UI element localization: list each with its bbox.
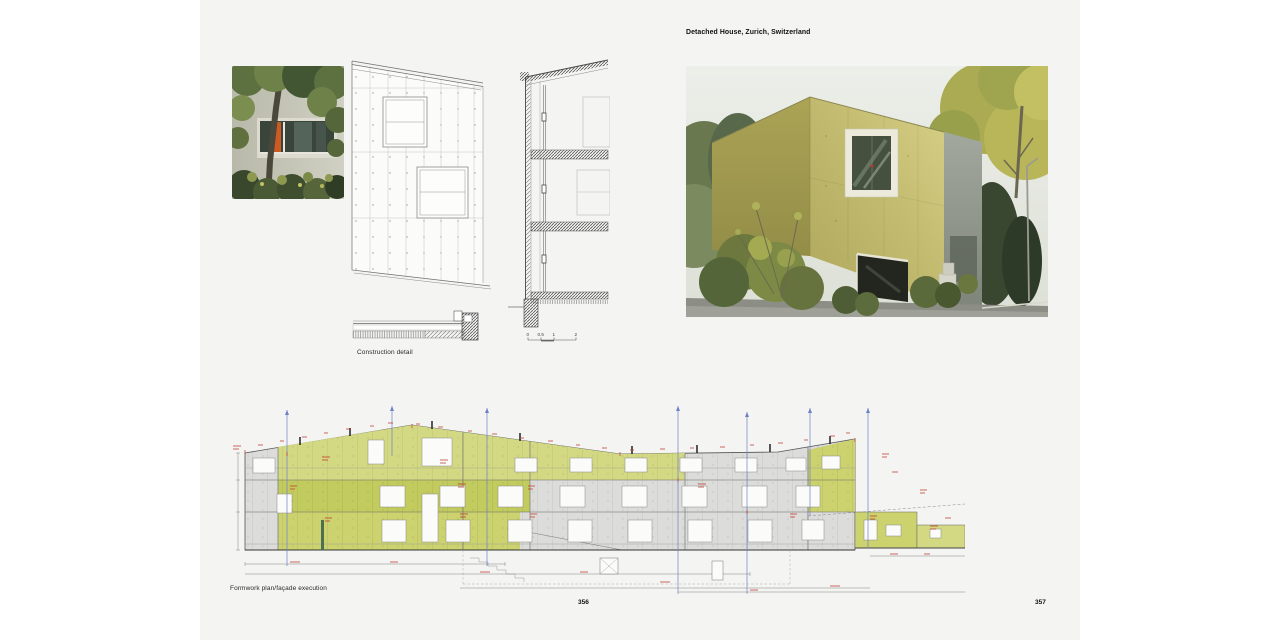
page-number-right: 357 <box>1035 599 1046 606</box>
construction-detail-drawing: 0 0.5 1 2 <box>350 55 610 350</box>
book-spread: 0 0.5 1 2 Construction detail Detached H… <box>200 0 1080 640</box>
scale-bar: 0 0.5 1 2 <box>527 332 578 341</box>
downpipe <box>321 520 324 550</box>
screenshot-root: { "book": { "title": "Detached House, Zu… <box>0 0 1280 640</box>
elevation-fragment <box>352 61 491 289</box>
small-photo-courtyard <box>232 66 344 199</box>
scale-label-05: 0.5 <box>538 332 545 337</box>
scale-label-1: 1 <box>553 332 556 337</box>
axis-arrows <box>285 406 870 417</box>
elevation-window-upper <box>383 97 427 147</box>
caption-formwork-plan: Formwork plan/façade execution <box>230 585 327 592</box>
page-title: Detached House, Zurich, Switzerland <box>686 29 811 36</box>
caption-construction-detail: Construction detail <box>357 349 413 356</box>
formwork-plan-drawing <box>230 398 965 595</box>
big-square-window <box>845 129 898 197</box>
elevation-window-lower <box>417 167 468 218</box>
wall-section <box>508 60 610 327</box>
page-number-left: 356 <box>578 599 589 606</box>
scale-label-0: 0 <box>527 332 530 337</box>
large-photo-house <box>686 66 1048 317</box>
scale-label-2: 2 <box>575 332 578 337</box>
plan-detail <box>353 311 478 340</box>
